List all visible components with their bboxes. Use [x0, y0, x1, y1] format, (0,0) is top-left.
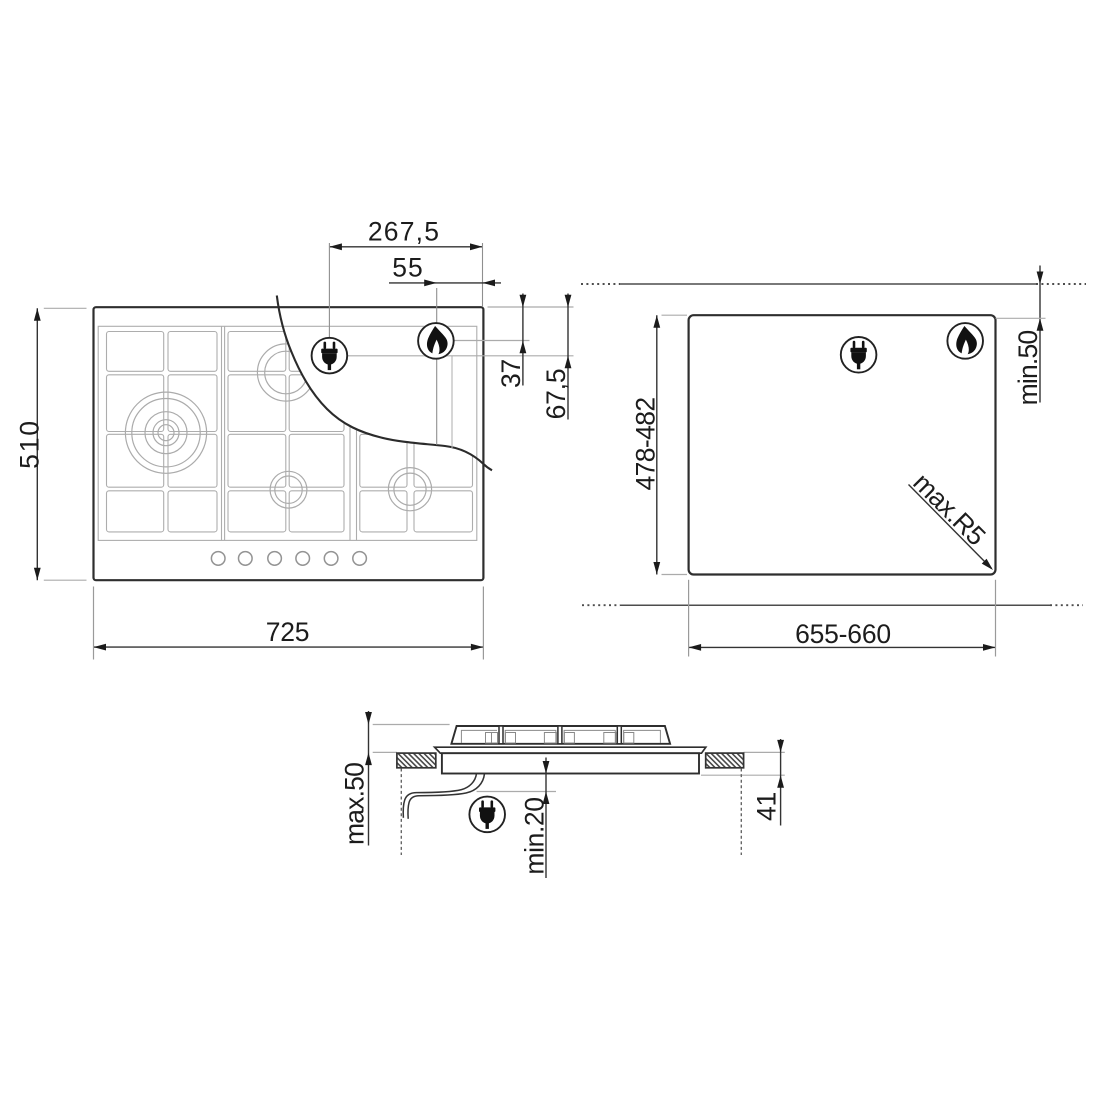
svg-text:41: 41	[752, 792, 782, 821]
svg-text:min.50: min.50	[1013, 331, 1043, 406]
svg-text:725: 725	[266, 617, 310, 647]
svg-text:655-660: 655-660	[795, 619, 891, 649]
svg-text:37: 37	[496, 359, 526, 388]
svg-text:max.50: max.50	[340, 763, 370, 845]
svg-text:min.20: min.20	[520, 797, 550, 874]
svg-text:478-482: 478-482	[631, 397, 661, 490]
svg-text:max.R5: max.R5	[907, 467, 991, 551]
svg-text:267,5: 267,5	[368, 217, 440, 247]
svg-text:55: 55	[392, 253, 423, 283]
svg-text:67,5: 67,5	[541, 369, 571, 420]
svg-text:510: 510	[15, 419, 45, 469]
